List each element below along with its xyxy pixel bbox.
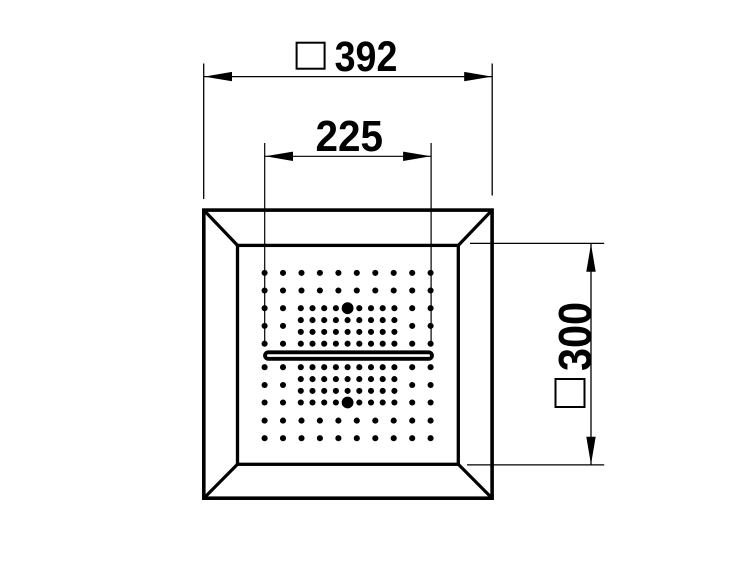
svg-text:392: 392 <box>335 31 398 80</box>
svg-text:225: 225 <box>316 112 384 161</box>
svg-text:300: 300 <box>550 302 602 371</box>
